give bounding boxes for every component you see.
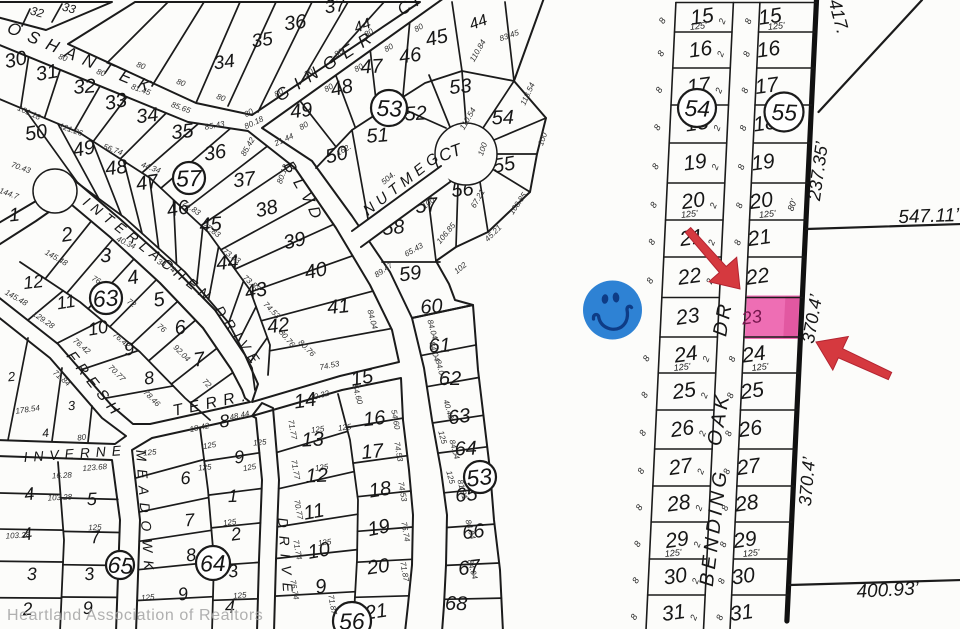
svg-text:49: 49	[71, 136, 97, 162]
svg-text:53: 53	[376, 95, 403, 122]
svg-text:26: 26	[736, 416, 764, 442]
svg-text:22: 22	[675, 264, 703, 290]
svg-text:37: 37	[323, 0, 348, 18]
svg-text:51: 51	[366, 124, 390, 148]
svg-text:11: 11	[55, 291, 77, 314]
svg-text:125': 125'	[767, 20, 785, 32]
svg-text:3: 3	[26, 564, 37, 584]
svg-text:30: 30	[730, 564, 757, 590]
svg-text:125: 125	[337, 422, 352, 433]
svg-text:103.28: 103.28	[47, 492, 72, 502]
svg-text:26: 26	[668, 416, 696, 442]
svg-text:27: 27	[666, 454, 695, 480]
svg-text:64: 64	[200, 550, 226, 577]
svg-text:1: 1	[8, 205, 21, 227]
svg-text:31: 31	[34, 60, 60, 86]
svg-text:50: 50	[23, 120, 48, 145]
svg-text:35: 35	[250, 29, 274, 53]
svg-text:25: 25	[670, 378, 698, 404]
svg-text:125: 125	[233, 590, 248, 600]
svg-text:125': 125'	[689, 20, 707, 32]
svg-text:16.28: 16.28	[52, 470, 73, 480]
svg-text:125: 125	[222, 517, 237, 528]
svg-text:22: 22	[743, 264, 771, 290]
svg-text:125: 125	[198, 462, 213, 472]
svg-text:125: 125	[317, 537, 332, 548]
svg-text:30: 30	[662, 564, 689, 590]
svg-text:400.93’: 400.93’	[856, 578, 920, 602]
svg-text:547.11’: 547.11’	[898, 205, 960, 228]
svg-text:56: 56	[339, 608, 365, 629]
svg-text:125: 125	[314, 462, 329, 473]
svg-text:21: 21	[745, 225, 772, 251]
svg-text:28: 28	[733, 491, 761, 517]
svg-text:34: 34	[135, 104, 160, 129]
svg-text:31: 31	[728, 600, 754, 626]
svg-text:23: 23	[739, 306, 763, 329]
svg-text:20: 20	[365, 555, 391, 580]
svg-text:16: 16	[362, 407, 388, 432]
svg-text:19: 19	[682, 150, 709, 176]
svg-text:28: 28	[665, 491, 693, 517]
svg-text:125: 125	[253, 437, 268, 447]
svg-text:125': 125'	[758, 208, 776, 220]
svg-text:125: 125	[141, 592, 156, 602]
svg-text:125': 125'	[742, 547, 760, 559]
svg-text:33: 33	[103, 89, 129, 115]
svg-text:47: 47	[360, 55, 384, 78]
svg-text:31: 31	[660, 600, 686, 626]
svg-text:23: 23	[674, 304, 702, 330]
svg-text:54: 54	[684, 95, 711, 122]
svg-text:46: 46	[398, 43, 424, 68]
svg-text:59: 59	[398, 262, 423, 287]
svg-text:103.28: 103.28	[5, 530, 30, 540]
svg-text:Heartland Association of Realt: Heartland Association of Realtors	[7, 607, 263, 624]
svg-text:68: 68	[445, 593, 468, 615]
svg-text:125: 125	[310, 424, 325, 435]
svg-text:36: 36	[283, 10, 309, 35]
svg-text:125: 125	[88, 523, 102, 533]
svg-text:1: 1	[228, 486, 239, 506]
svg-text:65: 65	[107, 551, 134, 579]
svg-text:53: 53	[465, 463, 494, 492]
svg-text:25: 25	[738, 378, 766, 404]
svg-text:40: 40	[303, 258, 329, 284]
svg-text:19: 19	[750, 150, 777, 176]
svg-text:35: 35	[170, 120, 195, 144]
svg-text:5: 5	[86, 489, 98, 509]
svg-text:36: 36	[202, 140, 228, 166]
svg-text:63: 63	[92, 284, 119, 312]
svg-text:125': 125'	[751, 361, 769, 373]
svg-text:54: 54	[491, 107, 514, 130]
svg-text:60: 60	[420, 295, 444, 319]
svg-text:27: 27	[734, 454, 763, 480]
svg-text:125': 125'	[680, 208, 698, 220]
svg-text:34: 34	[212, 51, 236, 75]
svg-text:48: 48	[104, 156, 129, 181]
svg-text:125': 125'	[673, 361, 691, 373]
svg-text:32: 32	[73, 75, 97, 99]
svg-text:16: 16	[755, 37, 782, 63]
svg-text:11: 11	[302, 499, 326, 524]
svg-text:57: 57	[176, 165, 204, 192]
svg-text:19: 19	[366, 515, 392, 541]
svg-text:41: 41	[326, 295, 350, 319]
svg-text:125': 125'	[664, 547, 682, 559]
svg-text:10: 10	[86, 317, 109, 340]
svg-text:37: 37	[232, 168, 258, 193]
svg-text:53: 53	[448, 75, 472, 99]
svg-text:3: 3	[99, 245, 112, 268]
svg-text:80: 80	[77, 432, 88, 442]
svg-text:17: 17	[360, 440, 385, 464]
svg-text:18: 18	[367, 477, 393, 502]
svg-text:12: 12	[22, 271, 44, 293]
svg-text:125: 125	[143, 447, 158, 457]
svg-text:49: 49	[289, 99, 314, 124]
svg-text:16: 16	[687, 37, 714, 63]
svg-text:55: 55	[771, 99, 798, 126]
